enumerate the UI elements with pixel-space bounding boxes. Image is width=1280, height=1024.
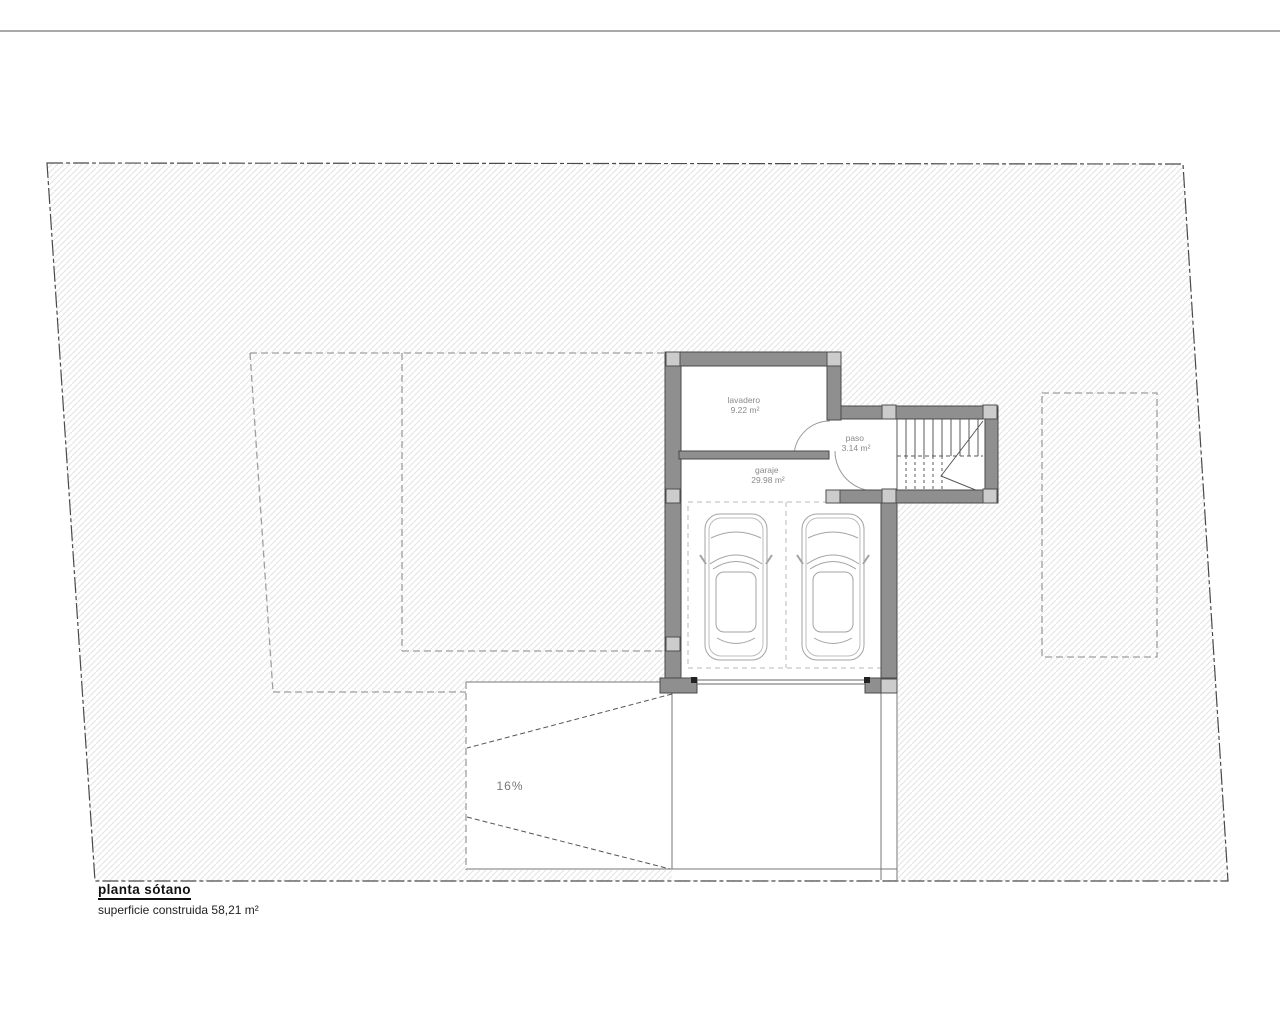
door-jamb <box>864 677 870 683</box>
pillar <box>666 489 680 503</box>
wall-room-divider <box>679 451 829 459</box>
wall-top <box>665 352 841 366</box>
wall-lavadero-right <box>827 366 841 420</box>
pillar <box>882 405 896 419</box>
pillar <box>983 405 997 419</box>
pillar <box>983 489 997 503</box>
stair-core-floor-area <box>841 406 998 503</box>
room-label-lavadero: lavadero 9.22 m² <box>728 395 763 415</box>
title-block: planta sótano superficie construida 58,2… <box>98 881 259 917</box>
pillar <box>826 490 840 503</box>
wall-stair-bottom <box>827 490 998 503</box>
pillar <box>666 637 680 651</box>
driveway-area <box>672 693 898 880</box>
pillar <box>881 679 897 693</box>
drawing-page: lavadero 9.22 m² paso 3.14 m² garaje 29.… <box>0 0 1280 1024</box>
wall-stair-top <box>841 406 998 419</box>
door-jamb <box>691 677 697 683</box>
room-label-garaje: garaje 29.98 m² <box>751 465 785 485</box>
pillar <box>882 489 896 503</box>
room-label-paso: paso 3.14 m² <box>842 433 871 453</box>
ramp-area <box>466 682 672 870</box>
wall-garage-right <box>881 503 897 679</box>
wall-stair-right <box>985 406 998 503</box>
page-divider-line <box>0 30 1280 32</box>
pillar <box>827 352 841 366</box>
ramp-slope-label: 16% <box>496 779 523 793</box>
plan-surface-note: superficie construida 58,21 m² <box>98 903 259 917</box>
plan-title: planta sótano <box>98 882 191 900</box>
pillar <box>666 352 680 366</box>
basement-floor-plan: lavadero 9.22 m² paso 3.14 m² garaje 29.… <box>0 0 1280 1024</box>
